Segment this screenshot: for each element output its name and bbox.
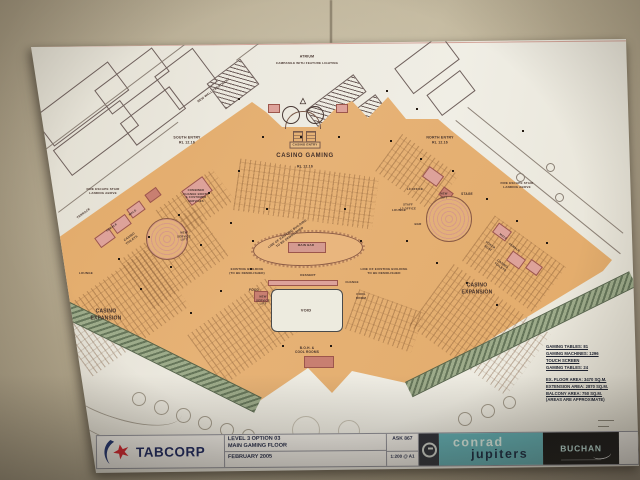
label-staff-office: STAFF L3 OFFICE <box>400 203 416 210</box>
drawing-sheet-shadow: △ ATRIUM CAMPANILE WITH FEATURE LIGHTING… <box>0 0 640 480</box>
label-south-entry: SOUTH ENTRY RL 12.16 <box>173 135 200 144</box>
label-boh: B.O.H. & COOL ROOMS <box>295 346 319 354</box>
tree-icon <box>458 412 472 426</box>
label-north-entry: NORTH ENTRY RL 12.16 <box>426 135 453 144</box>
note-line: TOUCH SCREEN <box>546 358 638 365</box>
note-line: EXTENSION AREA: 2870 SQ.M. <box>546 384 638 391</box>
label-demolish-right: LINE OF EXISTING BUILDING TO BE DEMOLISH… <box>360 268 407 276</box>
logo-panel <box>419 433 439 465</box>
title-block: TABCORP LEVEL 3 OPTION 03 MAIN GAMING FL… <box>96 431 639 469</box>
tree-icon <box>503 396 516 409</box>
label-casino-expansion-right: CASINO EXPANSION <box>462 283 493 296</box>
stage-round-feature <box>426 196 472 242</box>
drawing-scale: 1:200 @ A1 <box>387 451 418 466</box>
conrad-jupiters-panel: conrad jupiters <box>439 433 543 466</box>
note-line: BALCONY AREA: 750 SQ.M. <box>546 391 638 398</box>
entry-feature <box>268 104 280 113</box>
label-new-lift: NEW LIFT <box>440 192 447 199</box>
tree-icon <box>481 404 495 418</box>
boh-room <box>304 356 334 368</box>
note-line: GAMING MACHINES: 1296 <box>546 351 638 358</box>
label-fire-escape-left: FIRE ESCAPE STAIR LANDING ABOVE <box>86 188 119 196</box>
label-change-booth: COMBINED CHANGE BOOTH & CUSTOMER SERVICE… <box>183 189 208 204</box>
existing-building-outline <box>207 59 260 110</box>
drawing-title-panel: LEVEL 3 OPTION 03 MAIN GAMING FLOOR FEBR… <box>225 434 387 467</box>
sheet-border-line <box>40 40 626 47</box>
buchan-panel: BUCHAN <box>543 432 619 465</box>
fine-print-line <box>598 420 614 421</box>
label-main-bar: MAIN BAR <box>298 244 315 248</box>
campanile-spire-icon: △ <box>300 96 306 106</box>
title-line-2: MAIN GAMING FLOOR <box>228 442 386 451</box>
column-marker <box>555 193 564 202</box>
label-new-service-lift-2: NEW SERVICE LIFT <box>256 296 270 307</box>
note-line: EX. FLOOR AREA: 3470 SQ.M. <box>546 377 638 384</box>
note-line: GAMING TABLES: 81 <box>546 344 638 351</box>
label-change: CHANGE <box>345 281 358 285</box>
label-atrium: ATRIUM <box>300 55 315 60</box>
site-line <box>236 6 308 61</box>
column-marker <box>546 163 555 172</box>
buchan-fine-print <box>561 459 601 460</box>
entry-feature <box>336 104 348 113</box>
drawing-sheet: △ ATRIUM CAMPANILE WITH FEATURE LIGHTING… <box>0 0 640 480</box>
label-fire-escape-right: FIRE ESCAPE STAIR LANDING ABOVE <box>500 182 533 190</box>
label-casino-gaming: CASINO GAMING <box>276 153 333 161</box>
label-void: VOID <box>301 307 312 312</box>
label-stage: STAGE <box>461 192 473 196</box>
label-dessert: DESSERT <box>300 274 316 278</box>
label-food: FOOD <box>249 288 259 292</box>
label-rl-level: RL 12.16 <box>297 165 313 170</box>
campanile-dome <box>282 106 300 124</box>
photo-of-floor-plan: △ ATRIUM CAMPANILE WITH FEATURE LIGHTING… <box>0 0 640 480</box>
drawing-number: ASK 867 <box>387 434 418 452</box>
circle-logo-icon <box>421 442 436 457</box>
label-new-service-lift-1: NEW SERVICE LIFT <box>177 232 191 243</box>
note-line: GAMING TABLES: 24 <box>546 365 638 372</box>
label-existing-demolished: EXISTING BUILDING (TO BE DEMOLISHED) <box>229 268 265 276</box>
label-cool-room: COOL ROOM <box>356 293 366 301</box>
area-schedule-notes: GAMING TABLES: 81 GAMING MACHINES: 1296 … <box>546 344 638 404</box>
strip-filler <box>619 432 638 464</box>
label-casino-entry: CASINO ENTRY <box>290 142 321 149</box>
dessert-counter <box>268 280 338 286</box>
note-line: (AREAS ARE APPROXIMATE) <box>546 397 638 404</box>
label-campanile: CAMPANILE WITH FEATURE LIGHTING <box>276 62 338 66</box>
drawing-title: LEVEL 3 OPTION 03 MAIN GAMING FLOOR <box>225 434 386 453</box>
jupiters-wordmark: jupiters <box>471 447 528 461</box>
column-grid-dots <box>0 0 2 2</box>
label-l3-office: L3 OFFICE <box>407 188 423 192</box>
label-bar: BAR <box>414 223 421 227</box>
tabcorp-wordmark: TABCORP <box>136 444 205 460</box>
tabcorp-logo-icon <box>102 439 132 465</box>
reference-panel: ASK 867 1:200 @ A1 <box>387 434 419 466</box>
label-casino-expansion-left: CASINO EXPANSION <box>91 309 122 322</box>
drawing-date: FEBRUARY 2005 <box>225 451 386 467</box>
tabcorp-panel: TABCORP <box>97 435 225 468</box>
label-lounge-left: LOUNGE <box>79 272 93 276</box>
fine-print-line <box>598 426 609 427</box>
campanile-dome <box>306 106 324 124</box>
